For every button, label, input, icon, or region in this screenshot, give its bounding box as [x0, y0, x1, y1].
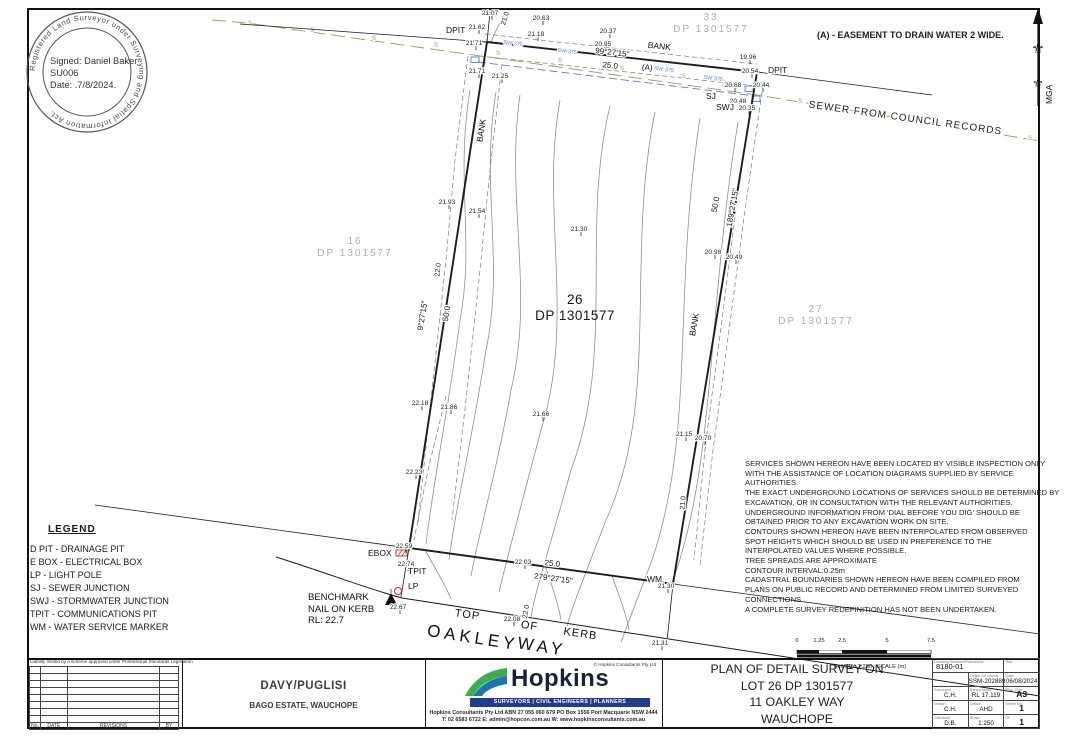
note-line: OBTAINED PRIOR TO ANY EXCAVATION WORK ON…: [745, 517, 1045, 527]
point-label-tpit: TPIT: [408, 566, 426, 576]
client-name: DAVY/PUGLISI: [182, 680, 425, 692]
info-cell: Scale1:250: [968, 715, 1004, 729]
scale-tick: 1.25: [813, 638, 824, 644]
note-line: WITH THE ASSISTANCE OF LOCATION DIAGRAMS…: [745, 469, 1045, 479]
spot-height: 21.62: [469, 24, 486, 31]
dimension-label: (A): [641, 62, 653, 72]
north-arrowhead: [1033, 8, 1043, 24]
lot-dp: DP 1301577: [778, 316, 853, 327]
dimension-label: BANK: [687, 312, 701, 337]
dimension-label: 25.0: [602, 60, 619, 71]
spot-height: 21.30: [658, 583, 675, 590]
spot-height: 21.30: [571, 226, 588, 233]
client-project: BAGO ESTATE, WAUCHOPE: [182, 701, 425, 710]
bank-dashed-line: [694, 98, 752, 560]
legend-item: SWJ - STORMWATER JUNCTION: [30, 595, 240, 608]
north-ornament-2: ⚜: [1032, 76, 1044, 91]
dimension-label: 279°27'15": [534, 572, 574, 586]
point-label-sj: SJ: [706, 91, 716, 101]
spot-height: 22.23: [406, 469, 423, 476]
stamp-ring-text: Registered Land Surveyor under Surveying…: [28, 13, 146, 131]
note-line: A COMPLETE SURVEY REDEFINITION HAS NOT B…: [745, 605, 1045, 615]
lot-number: 26: [567, 292, 583, 307]
note-line: SPOT HEIGHTS WHICH SHOULD BE USED IN PRE…: [745, 537, 1045, 547]
info-cell: Origin Of LevelsSSM-202889: [968, 673, 1004, 687]
sewer-size-label: SW 375: [703, 75, 723, 83]
note-line: THE EXACT UNDERGROUND LOCATIONS OF SERVI…: [745, 488, 1045, 498]
sewer-s-marker: S: [434, 43, 438, 49]
dimension-label: 22.0: [434, 263, 442, 277]
benchmark-note: BENCHMARKNAIL ON KERBRL: 22.7: [308, 592, 374, 627]
company-address-line2: T: 02 6583 6722 E: admin@hopcon.com.au W…: [425, 717, 662, 724]
legend-item: WM - WATER SERVICE MARKER: [30, 621, 240, 634]
legend-items: D PIT - DRAINAGE PITE BOX - ELECTRICAL B…: [30, 543, 240, 634]
revisions-table: No.DATEREVISIONSBY: [29, 666, 179, 724]
spot-height: 21.18: [528, 31, 545, 38]
revision-header: BY: [160, 723, 179, 730]
lot-dp: DP 1301577: [673, 24, 748, 35]
cadastral-line: [757, 72, 932, 95]
title-block: PLAN OF DETAIL SURVEY ONLOT 26 DP 130157…: [662, 658, 932, 729]
note-line: CONTOURS SHOWN HEREON HAVE BEEN INTERPOL…: [745, 527, 1045, 537]
note-line: CONNECTIONS.: [745, 595, 1045, 605]
note-line: AUTHORITIES.: [745, 478, 1045, 488]
spot-height: 22.59: [396, 543, 413, 550]
benchmark-line: RL: 22.7: [308, 615, 374, 627]
sewer-s-marker: S: [558, 58, 562, 64]
lot-number: 27: [808, 304, 823, 315]
bank-dashed-line: [418, 56, 468, 522]
legend-item: LP - LIGHT POLE: [30, 569, 240, 582]
spot-height: 21.31: [652, 640, 669, 647]
title-line: LOT 26 DP 1301577: [662, 678, 932, 695]
survey-plan-sheet: SSSSSSSSSSSSSS21.0720.6320.3721.6221.182…: [0, 0, 1067, 736]
street-label: OF: [520, 619, 539, 633]
survey-notes: SERVICES SHOWN HEREON HAVE BEEN LOCATED …: [745, 459, 1045, 614]
point-label-lp: LP: [408, 581, 419, 591]
sewer-s-marker: S: [798, 99, 802, 105]
note-line: INTERPOLATED VALUES WHERE POSSIBLE.: [745, 546, 1045, 556]
drawing-info-table: Drawing Number/Reference8180-01Rev.Origi…: [932, 658, 1040, 729]
contour-line: [449, 92, 496, 560]
info-cell: Date06/08/2024: [1004, 673, 1040, 687]
contour-line: [499, 100, 560, 592]
company-logo-icon: [463, 666, 509, 698]
sewer-s-marker: S: [1028, 136, 1032, 142]
info-cell: DatumAHD: [968, 701, 1004, 715]
surveyor-stamp: Registered Land Surveyor under Surveying…: [8, 0, 160, 152]
dimension-label: 99°27'15": [595, 46, 630, 59]
spot-height: 22.67: [390, 604, 407, 611]
point-label-ebox: EBOX: [368, 548, 392, 558]
info-cell: CheckedD.B.: [933, 715, 969, 729]
spot-height: 20.70: [695, 435, 712, 442]
spot-height: 19.96: [740, 54, 757, 61]
revision-cell: Rev.: [1004, 659, 1040, 673]
note-line: SERVICES SHOWN HEREON HAVE BEEN LOCATED …: [745, 459, 1045, 469]
note-line: TREE SPREADS ARE APPROXIMATE: [745, 556, 1045, 566]
street-label: KERB: [563, 626, 598, 643]
spot-height: 20.49: [726, 254, 743, 261]
info-cell: Sheet No.1: [1004, 701, 1040, 715]
lot-number: 33: [703, 12, 718, 23]
scale-tick: 0: [795, 638, 798, 644]
spot-height: 20.54: [742, 68, 759, 75]
info-cell: SurveyedC.H.: [933, 687, 969, 701]
stamp-number: SU006: [50, 68, 78, 78]
info-cell: DrawnC.H.: [933, 701, 969, 715]
info-cell: Bench MarkRL 17.119: [968, 687, 1004, 701]
spot-height: 21.54: [469, 208, 486, 215]
revision-header: DATE: [40, 723, 67, 730]
north-arrow-mga: ⚜ ⚜ MGA: [1020, 6, 1062, 116]
point-label-wm: WM: [647, 574, 662, 584]
street-label: WAY: [516, 633, 567, 659]
sewer-s-marker: S: [620, 66, 624, 72]
note-line: PLANS ON PUBLIC RECORD AND DETERMINED FR…: [745, 585, 1045, 595]
sewer-s-marker: S: [496, 51, 500, 57]
sewer-size-label: SW 375: [557, 48, 577, 56]
dimension-label: 21.0: [500, 11, 511, 26]
easement-note: (A) - EASEMENT TO DRAIN WATER 2 WIDE.: [817, 30, 1004, 40]
street-label: OAKLEY: [426, 621, 520, 654]
sewer-junction-box: [471, 57, 479, 63]
lot-dp: DP 1301577: [317, 248, 392, 259]
light-pole-symbol: [395, 588, 402, 595]
benchmark-line: BENCHMARK: [308, 592, 374, 604]
dimension-label: 50.0: [441, 305, 452, 322]
revision-header: REVISIONS: [67, 723, 159, 730]
point-label-swj: SWJ: [716, 102, 734, 112]
dimension-label: BANK: [474, 118, 488, 143]
dimension-label: 189°27'15": [725, 188, 741, 228]
spot-height: 21.86: [441, 404, 458, 411]
scale-tick: 7.5: [927, 638, 935, 644]
spot-height: 20.37: [600, 28, 617, 35]
company-address-line1: Hopkins Consultants Pty Ltd ABN 27 055 0…: [425, 710, 662, 717]
lot-number: 16: [347, 236, 362, 247]
legend: LEGEND D PIT - DRAINAGE PITE BOX - ELECT…: [30, 524, 240, 634]
sewer-size-label: SW 375: [503, 40, 523, 48]
spot-height: 20.98: [705, 249, 722, 256]
title-line: WAUCHOPE: [662, 711, 932, 728]
lot-dp: DP 1301577: [535, 308, 615, 323]
legend-item: SJ - SEWER JUNCTION: [30, 582, 240, 595]
point-label-dpit: DPIT: [446, 25, 465, 35]
spot-height: 20.35: [739, 105, 756, 112]
note-line: UNDERGROUND INFORMATION FROM 'DIAL BEFOR…: [745, 508, 1045, 518]
spot-height: 21.71: [466, 40, 483, 47]
contour-line: [621, 118, 700, 642]
spot-height: 20.68: [725, 82, 742, 89]
note-line: CONTOUR INTERVAL:0.25m: [745, 566, 1045, 576]
spot-height: 22.03: [515, 559, 532, 566]
company-address: Hopkins Consultants Pty Ltd ABN 27 055 0…: [425, 710, 662, 724]
note-line: EXCAVATION, OR IN CONSULTATION WITH THE …: [745, 498, 1045, 508]
client-panel: DAVY/PUGLISI BAGO ESTATE, WAUCHOPE: [182, 658, 425, 729]
scale-bar-ticks: 01.252.557.5: [795, 638, 945, 645]
spot-height: 21.66: [533, 411, 550, 418]
dimension-label: 21.0: [680, 496, 688, 510]
info-cell: Of1: [1004, 715, 1040, 729]
info-cell: [933, 673, 969, 687]
revision-header: No.: [30, 723, 41, 730]
company-panel: © Hopkins Consultants Pty Ltd Hopkins SU…: [425, 658, 662, 729]
company-name: Hopkins: [511, 665, 609, 693]
dimension-label: 9°27'15": [416, 300, 430, 331]
spot-height: 20.63: [533, 15, 550, 22]
spot-height: 22.08: [504, 616, 521, 623]
benchmark-line: NAIL ON KERB: [308, 604, 374, 616]
scale-bar-graphic: [795, 650, 945, 658]
dimension-label: 50.0: [710, 196, 722, 213]
sewer-s-marker: S: [372, 36, 376, 42]
spot-height: 21.15: [676, 431, 693, 438]
contour-line: [670, 122, 738, 588]
sewer-s-marker: S: [248, 21, 252, 27]
stamp-signed: Signed: Daniel Baker: [50, 56, 137, 66]
stamp-date: Date: .7/8/2024.: [50, 80, 116, 90]
spot-height: 21.25: [492, 73, 509, 80]
scale-tick: 2.5: [838, 638, 846, 644]
spot-height: 21.07: [482, 10, 499, 17]
info-cell: Plan SizeA3: [1004, 687, 1040, 701]
contour-line: [471, 95, 521, 576]
note-line: CADASTRAL BOUNDARIES SHOWN HEREON HAVE B…: [745, 575, 1045, 585]
dimension-label: 22.0: [522, 604, 531, 619]
contour-line: [425, 550, 451, 599]
legend-item: D PIT - DRAINAGE PIT: [30, 543, 240, 556]
legend-item: E BOX - ELECTRICAL BOX: [30, 556, 240, 569]
legend-item: TPIT - COMMUNICATIONS PIT: [30, 608, 240, 621]
spot-height: 22.18: [412, 400, 429, 407]
street-label: TOP: [454, 607, 481, 622]
spot-height: 20.44: [753, 82, 770, 89]
liability-note: Liability limited by a scheme approved u…: [30, 659, 193, 664]
job-number-cell: Drawing Number/Reference8180-01: [933, 659, 1004, 673]
point-label-dpit: DPIT: [768, 65, 787, 75]
company-tagline: SURVEYORS | CIVIL ENGINEERS | PLANNERS: [470, 698, 650, 707]
mga-label: MGA: [1044, 84, 1054, 104]
title-line: PLAN OF DETAIL SURVEY ON: [662, 661, 932, 678]
dimension-label: BANK: [647, 40, 671, 53]
title-line: 11 OAKLEY WAY: [662, 694, 932, 711]
legend-title: LEGEND: [48, 524, 240, 535]
north-ornament-1: ⚜: [1031, 41, 1044, 58]
contour-line: [612, 576, 629, 630]
scale-tick: 5: [885, 638, 888, 644]
spot-height: 21.93: [439, 199, 456, 206]
sewer-records-label: SEWER FROM COUNCIL RECORDS: [808, 100, 1003, 138]
sewer-size-label: SW 375: [654, 66, 674, 74]
contour-line: [566, 112, 655, 630]
sewer-s-marker: S: [682, 74, 686, 80]
spot-height: 21.71: [469, 68, 486, 75]
